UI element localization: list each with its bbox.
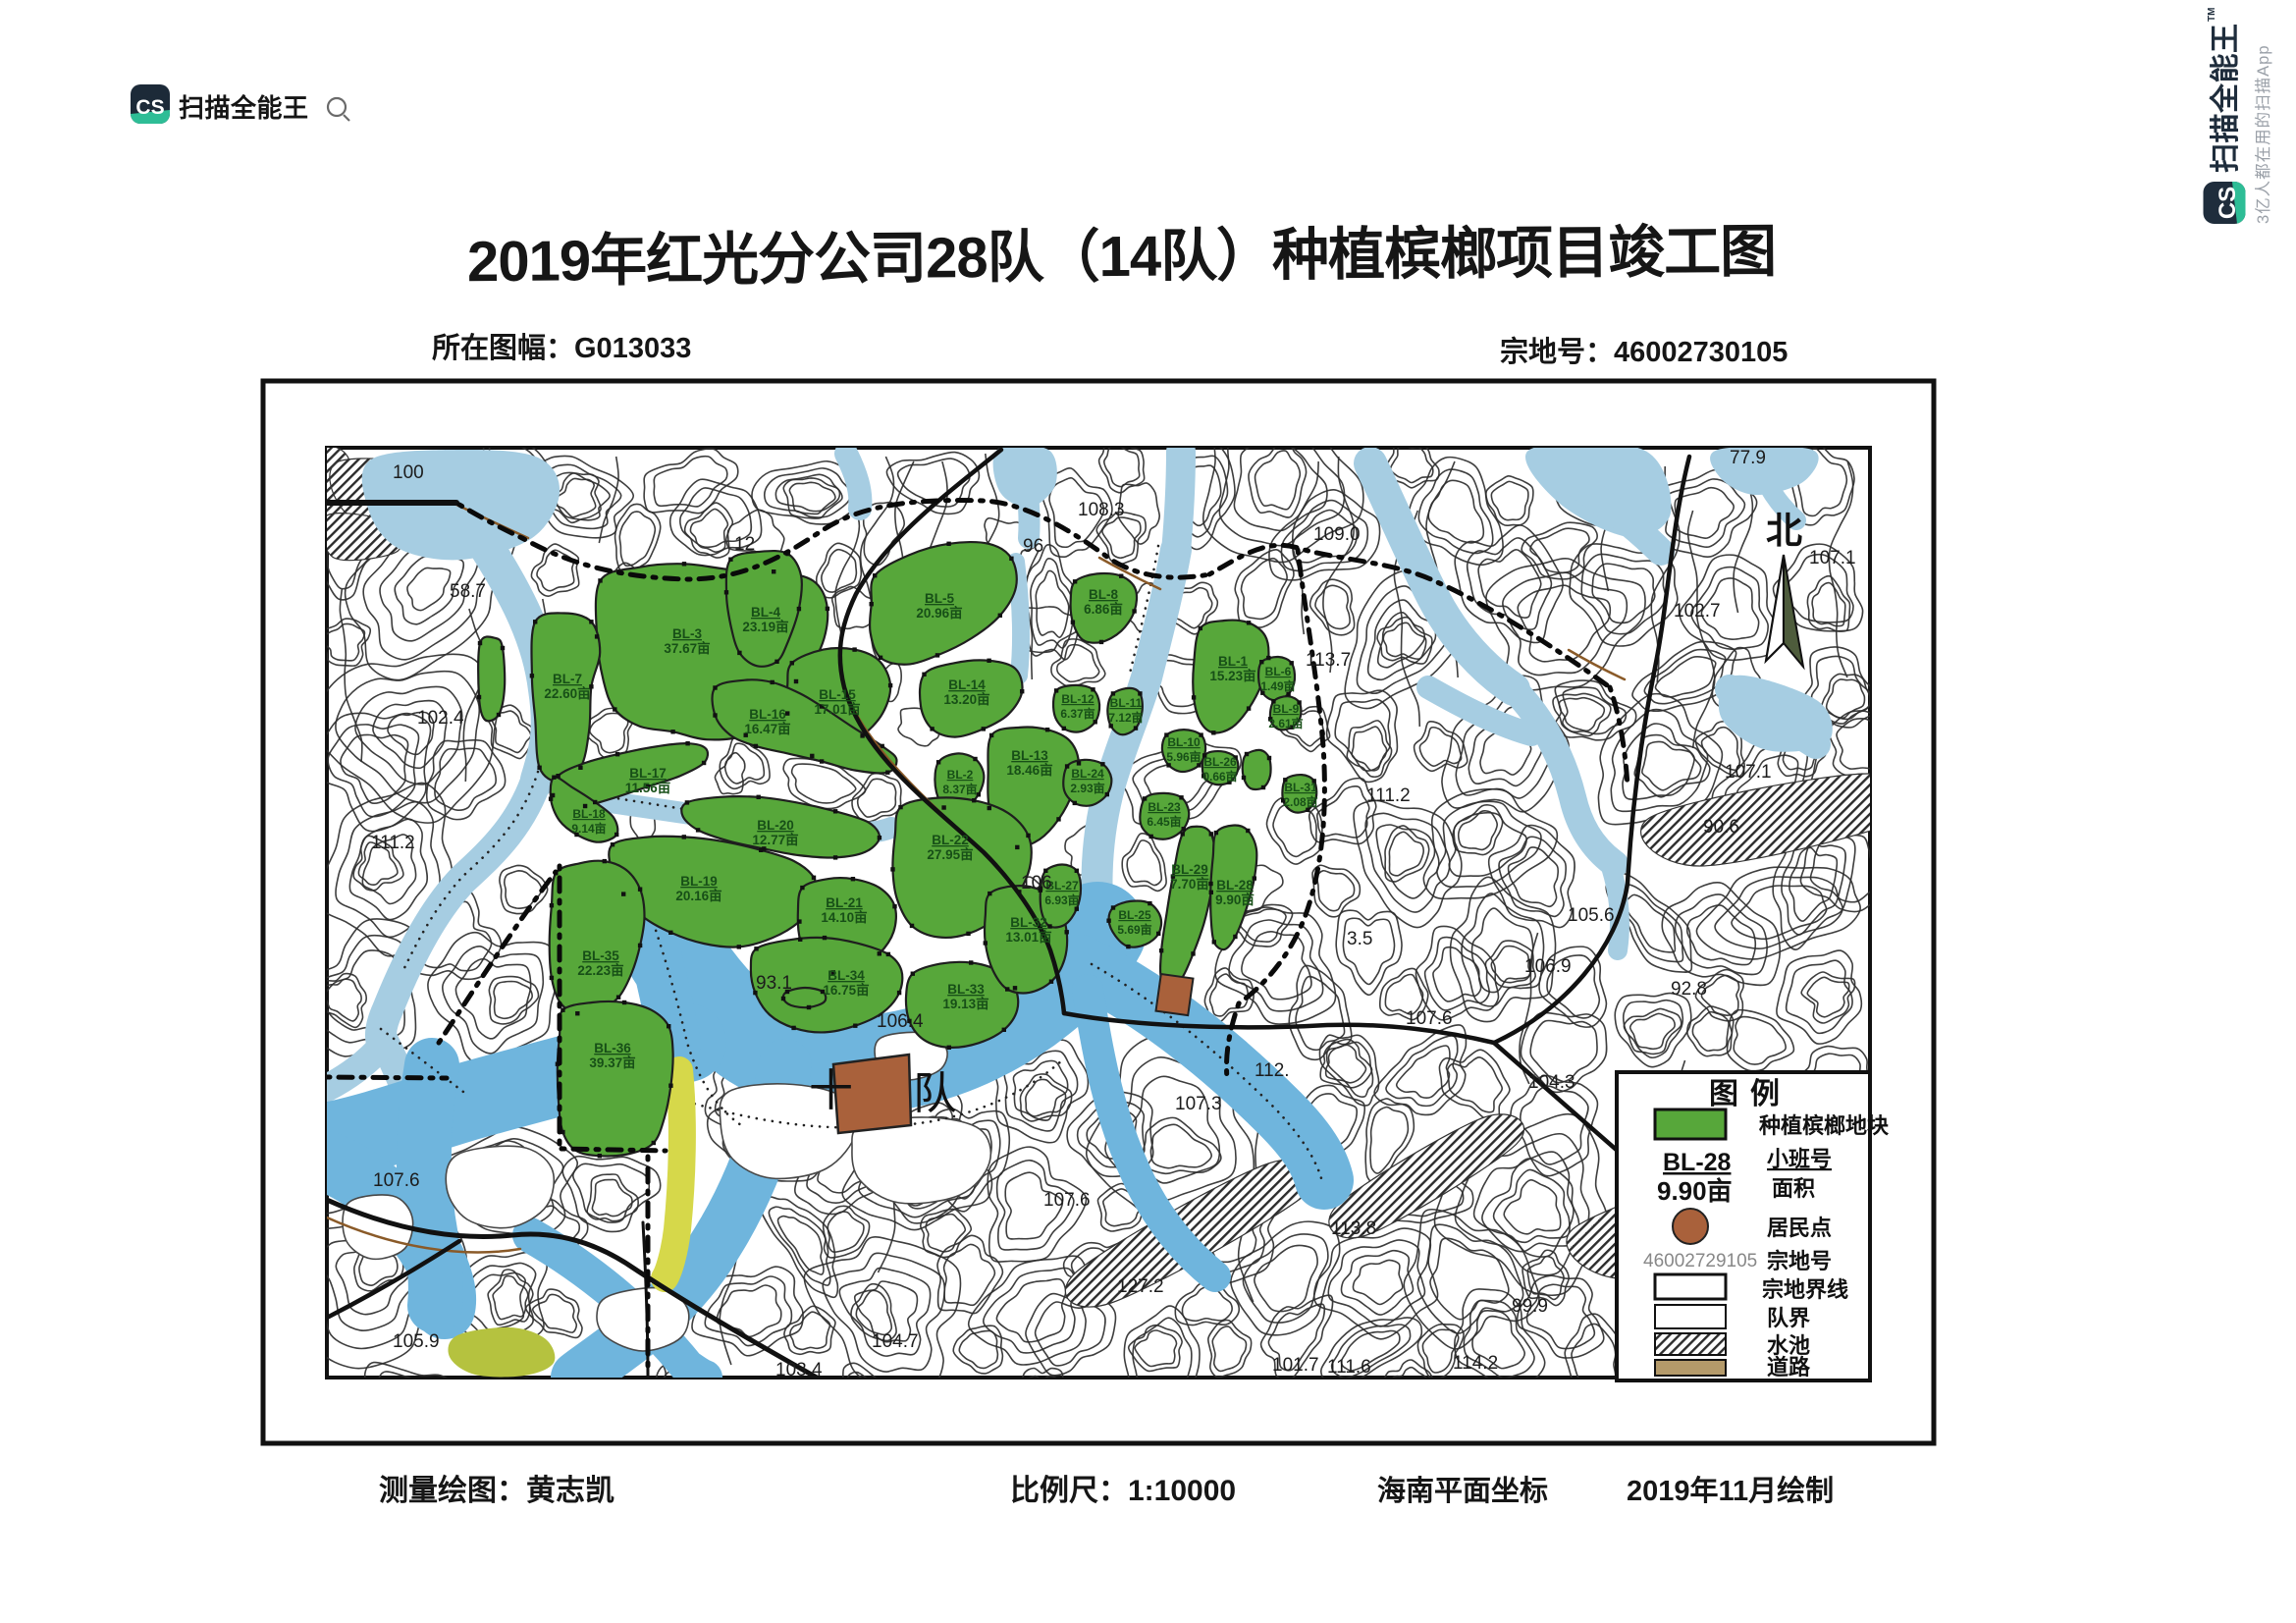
svg-text:104.7: 104.7 xyxy=(872,1331,919,1352)
svg-text:3.5: 3.5 xyxy=(1347,929,1372,949)
svg-text:8.37亩: 8.37亩 xyxy=(942,782,977,796)
svg-text:9.14亩: 9.14亩 xyxy=(571,821,606,836)
svg-text:111.6: 111.6 xyxy=(1327,1357,1371,1378)
svg-text:6.37亩: 6.37亩 xyxy=(1060,706,1095,721)
svg-text:2019年11月绘制: 2019年11月绘制 xyxy=(1627,1474,1834,1507)
svg-text:BL-33: BL-33 xyxy=(947,982,985,997)
svg-text:9.90亩: 9.90亩 xyxy=(1215,892,1255,907)
svg-text:12: 12 xyxy=(734,534,755,555)
svg-text:16.47亩: 16.47亩 xyxy=(744,721,790,736)
svg-text:队界: 队界 xyxy=(1767,1306,1810,1330)
svg-text:BL-24: BL-24 xyxy=(1071,767,1104,781)
svg-text:测量绘图：黄志凯: 测量绘图：黄志凯 xyxy=(379,1474,614,1507)
svg-text:37.67亩: 37.67亩 xyxy=(664,640,710,656)
svg-text:107.6: 107.6 xyxy=(1406,1008,1453,1029)
svg-text:23.19亩: 23.19亩 xyxy=(742,619,788,634)
svg-text:15.23亩: 15.23亩 xyxy=(1209,668,1255,683)
svg-text:BL-35: BL-35 xyxy=(582,948,619,963)
svg-text:BL-7: BL-7 xyxy=(553,672,582,686)
svg-text:92.8: 92.8 xyxy=(1671,979,1707,1000)
svg-text:6.45亩: 6.45亩 xyxy=(1147,814,1181,829)
svg-text:102.7: 102.7 xyxy=(1674,601,1721,622)
svg-text:111.2: 111.2 xyxy=(1366,785,1411,806)
svg-text:队: 队 xyxy=(913,1068,957,1118)
svg-text:11.56亩: 11.56亩 xyxy=(625,780,671,795)
svg-text:77.9: 77.9 xyxy=(1730,448,1766,468)
svg-text:BL-4: BL-4 xyxy=(751,605,780,620)
svg-text:9.90亩: 9.90亩 xyxy=(1657,1176,1733,1206)
svg-text:BL-32: BL-32 xyxy=(1010,915,1047,930)
svg-text:BL-36: BL-36 xyxy=(594,1041,631,1055)
svg-text:113.8: 113.8 xyxy=(1331,1218,1376,1239)
svg-text:BL-31: BL-31 xyxy=(1284,781,1317,794)
svg-text:BL-15: BL-15 xyxy=(819,687,856,702)
svg-text:107.6: 107.6 xyxy=(1043,1190,1091,1211)
svg-text:小班号: 小班号 xyxy=(1767,1147,1832,1171)
svg-text:BL-16: BL-16 xyxy=(749,707,786,722)
svg-text:99.9: 99.9 xyxy=(1512,1296,1548,1317)
svg-text:105.6: 105.6 xyxy=(1568,905,1615,926)
svg-text:14.10亩: 14.10亩 xyxy=(821,909,867,925)
svg-text:107.1: 107.1 xyxy=(1809,548,1856,568)
svg-text:12.77亩: 12.77亩 xyxy=(752,832,798,847)
svg-text:BL-26: BL-26 xyxy=(1203,755,1237,769)
svg-text:BL-28: BL-28 xyxy=(1216,878,1254,893)
svg-text:3亿人都在用的扫描App: 3亿人都在用的扫描App xyxy=(2254,44,2272,224)
svg-text:BL-1: BL-1 xyxy=(1218,654,1248,669)
svg-text:106.4: 106.4 xyxy=(877,1011,924,1032)
svg-text:112.: 112. xyxy=(1255,1060,1290,1081)
svg-text:所在图幅：G013033: 所在图幅：G013033 xyxy=(432,332,691,364)
svg-text:海南平面坐标: 海南平面坐标 xyxy=(1377,1475,1548,1507)
svg-text:27.95亩: 27.95亩 xyxy=(927,846,973,862)
svg-text:BL-3: BL-3 xyxy=(672,626,702,641)
svg-text:22.60亩: 22.60亩 xyxy=(544,685,590,701)
svg-text:BL-11: BL-11 xyxy=(1110,696,1143,710)
svg-text:111.2: 111.2 xyxy=(371,833,415,853)
svg-text:127.2: 127.2 xyxy=(1117,1276,1164,1297)
svg-text:93.1: 93.1 xyxy=(756,973,792,994)
svg-text:CS: CS xyxy=(2215,187,2241,219)
svg-text:109.0: 109.0 xyxy=(1313,524,1361,545)
svg-text:108.3: 108.3 xyxy=(1078,500,1125,520)
svg-text:7.70亩: 7.70亩 xyxy=(1170,876,1209,892)
svg-text:比例尺：1:10000: 比例尺：1:10000 xyxy=(1010,1475,1236,1507)
svg-text:101.7: 101.7 xyxy=(1272,1355,1319,1376)
svg-text:105.9: 105.9 xyxy=(393,1331,440,1352)
svg-text:BL-23: BL-23 xyxy=(1148,800,1181,814)
svg-text:106: 106 xyxy=(1021,873,1052,893)
svg-text:BL-25: BL-25 xyxy=(1118,908,1151,922)
svg-text:2.08亩: 2.08亩 xyxy=(1283,794,1317,809)
svg-text:居民点: 居民点 xyxy=(1767,1216,1832,1240)
svg-text:宗地界线: 宗地界线 xyxy=(1762,1277,1848,1302)
svg-text:20.96亩: 20.96亩 xyxy=(916,605,962,621)
svg-text:18.46亩: 18.46亩 xyxy=(1006,762,1052,778)
svg-text:BL-21: BL-21 xyxy=(826,895,863,910)
svg-text:BL-19: BL-19 xyxy=(680,874,718,889)
svg-text:90.6: 90.6 xyxy=(1703,817,1739,838)
svg-text:BL-8: BL-8 xyxy=(1089,587,1118,602)
svg-text:106.9: 106.9 xyxy=(1524,956,1572,977)
svg-text:BL-22: BL-22 xyxy=(932,833,969,847)
svg-text:5.96亩: 5.96亩 xyxy=(1166,749,1201,764)
svg-text:2019年红光分公司28队（14队）种植槟榔项目竣工图: 2019年红光分公司28队（14队）种植槟榔项目竣工图 xyxy=(467,220,1777,294)
svg-text:BL-34: BL-34 xyxy=(828,968,865,983)
svg-text:宗地号: 宗地号 xyxy=(1767,1249,1832,1273)
svg-text:2.61亩: 2.61亩 xyxy=(1268,716,1303,730)
svg-text:13.20亩: 13.20亩 xyxy=(943,691,989,707)
svg-text:BL-29: BL-29 xyxy=(1171,862,1208,877)
svg-text:BL-10: BL-10 xyxy=(1167,735,1201,749)
svg-text:0.66亩: 0.66亩 xyxy=(1202,769,1237,784)
svg-text:103.4: 103.4 xyxy=(775,1360,823,1380)
svg-text:1.49亩: 1.49亩 xyxy=(1260,678,1295,693)
svg-text:39.37亩: 39.37亩 xyxy=(589,1055,635,1070)
svg-text:107.3: 107.3 xyxy=(1175,1094,1222,1114)
svg-text:图例: 图例 xyxy=(1709,1078,1791,1110)
svg-text:BL-9: BL-9 xyxy=(1273,702,1300,716)
svg-text:面积: 面积 xyxy=(1772,1176,1815,1201)
svg-text:17.01亩: 17.01亩 xyxy=(814,701,860,717)
svg-text:22.23亩: 22.23亩 xyxy=(577,962,623,978)
svg-text:104.3: 104.3 xyxy=(1528,1072,1575,1093)
svg-text:BL-13: BL-13 xyxy=(1011,748,1048,763)
svg-text:北: 北 xyxy=(1766,511,1802,551)
svg-text:扫描全能王: 扫描全能王 xyxy=(2209,24,2242,174)
svg-text:7.12亩: 7.12亩 xyxy=(1108,710,1143,725)
svg-text:102.4: 102.4 xyxy=(417,708,464,729)
svg-text:5.69亩: 5.69亩 xyxy=(1117,922,1151,937)
svg-text:20.16亩: 20.16亩 xyxy=(675,888,721,903)
svg-text:114.2: 114.2 xyxy=(1453,1353,1498,1374)
svg-text:BL-2: BL-2 xyxy=(947,768,974,782)
svg-text:BL-20: BL-20 xyxy=(757,818,794,833)
svg-text:种植槟榔地块: 种植槟榔地块 xyxy=(1759,1113,1890,1138)
svg-text:BL-5: BL-5 xyxy=(925,591,954,606)
svg-text:2.93亩: 2.93亩 xyxy=(1070,781,1104,795)
svg-text:扫描全能王: 扫描全能王 xyxy=(179,93,309,123)
svg-text:6.86亩: 6.86亩 xyxy=(1084,601,1123,617)
svg-text:宗地号：46002730105: 宗地号：46002730105 xyxy=(1500,335,1788,368)
svg-text:113.7: 113.7 xyxy=(1306,650,1351,671)
svg-text:BL-12: BL-12 xyxy=(1061,692,1095,706)
svg-text:13.01亩: 13.01亩 xyxy=(1005,929,1051,945)
svg-text:BL-28: BL-28 xyxy=(1663,1149,1732,1176)
svg-text:TM: TM xyxy=(2207,8,2217,22)
svg-text:107.6: 107.6 xyxy=(373,1170,420,1191)
svg-text:100: 100 xyxy=(393,462,424,483)
svg-text:46002729105: 46002729105 xyxy=(1643,1251,1757,1271)
svg-text:16.75亩: 16.75亩 xyxy=(823,982,869,998)
svg-text:道路: 道路 xyxy=(1767,1355,1811,1380)
svg-text:BL-14: BL-14 xyxy=(948,677,986,692)
svg-text:19.13亩: 19.13亩 xyxy=(942,996,988,1011)
svg-text:BL-18: BL-18 xyxy=(572,807,606,821)
svg-text:96: 96 xyxy=(1023,536,1043,557)
svg-text:BL-17: BL-17 xyxy=(629,766,667,781)
svg-text:CS: CS xyxy=(135,96,164,119)
svg-text:58.7: 58.7 xyxy=(450,581,486,602)
svg-text:107.1: 107.1 xyxy=(1725,762,1772,783)
svg-text:十: 十 xyxy=(809,1065,853,1115)
svg-text:BL-6: BL-6 xyxy=(1265,665,1292,678)
svg-text:6.93亩: 6.93亩 xyxy=(1044,893,1079,907)
